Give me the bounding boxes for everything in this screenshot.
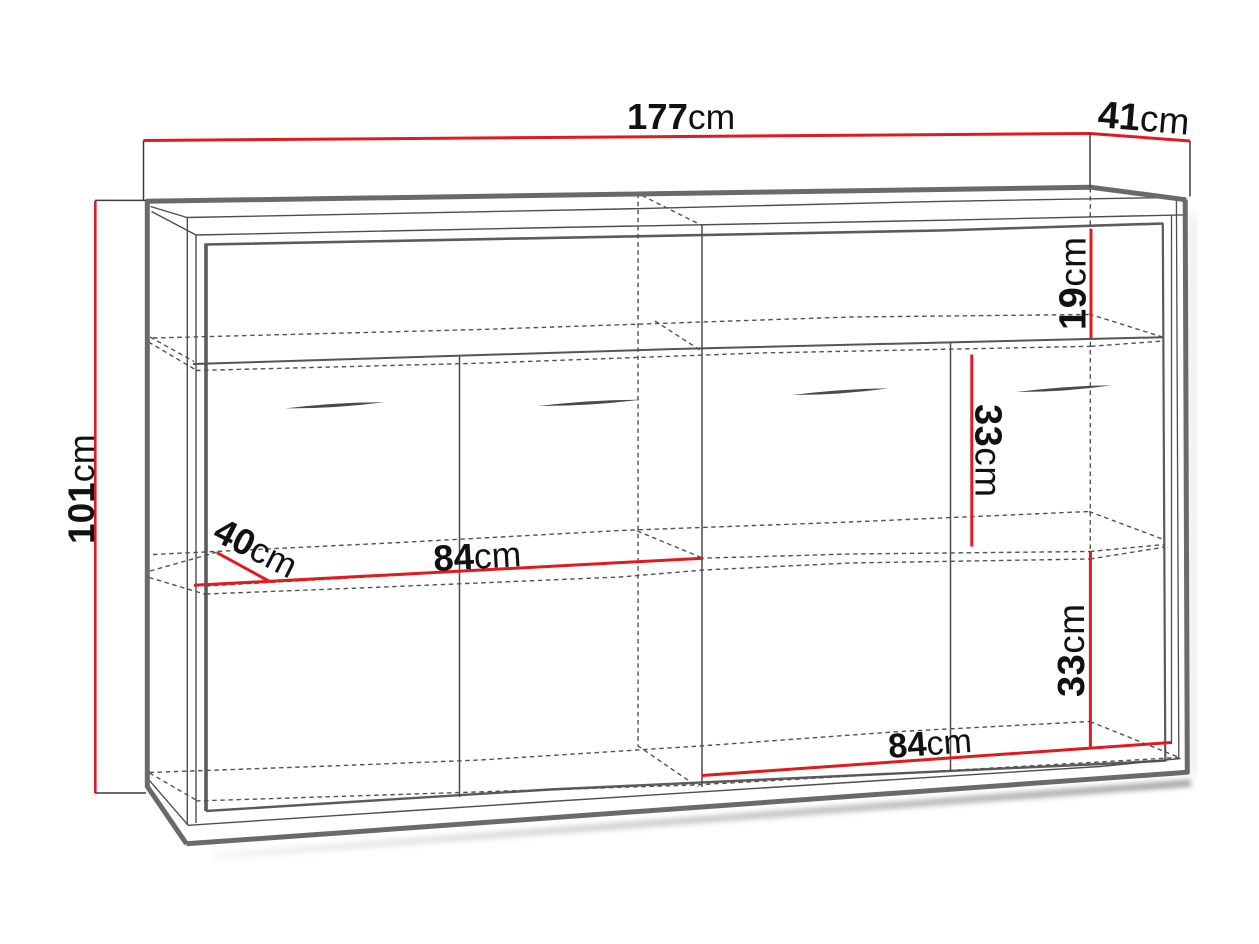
svg-text:19cm: 19cm <box>1053 236 1095 330</box>
svg-text:33cm: 33cm <box>967 404 1009 498</box>
svg-text:101cm: 101cm <box>61 434 102 544</box>
svg-text:33cm: 33cm <box>1051 603 1093 697</box>
svg-text:84cm: 84cm <box>887 722 973 766</box>
svg-text:41cm: 41cm <box>1096 94 1191 144</box>
svg-text:177cm: 177cm <box>627 96 735 137</box>
svg-text:84cm: 84cm <box>432 533 522 579</box>
